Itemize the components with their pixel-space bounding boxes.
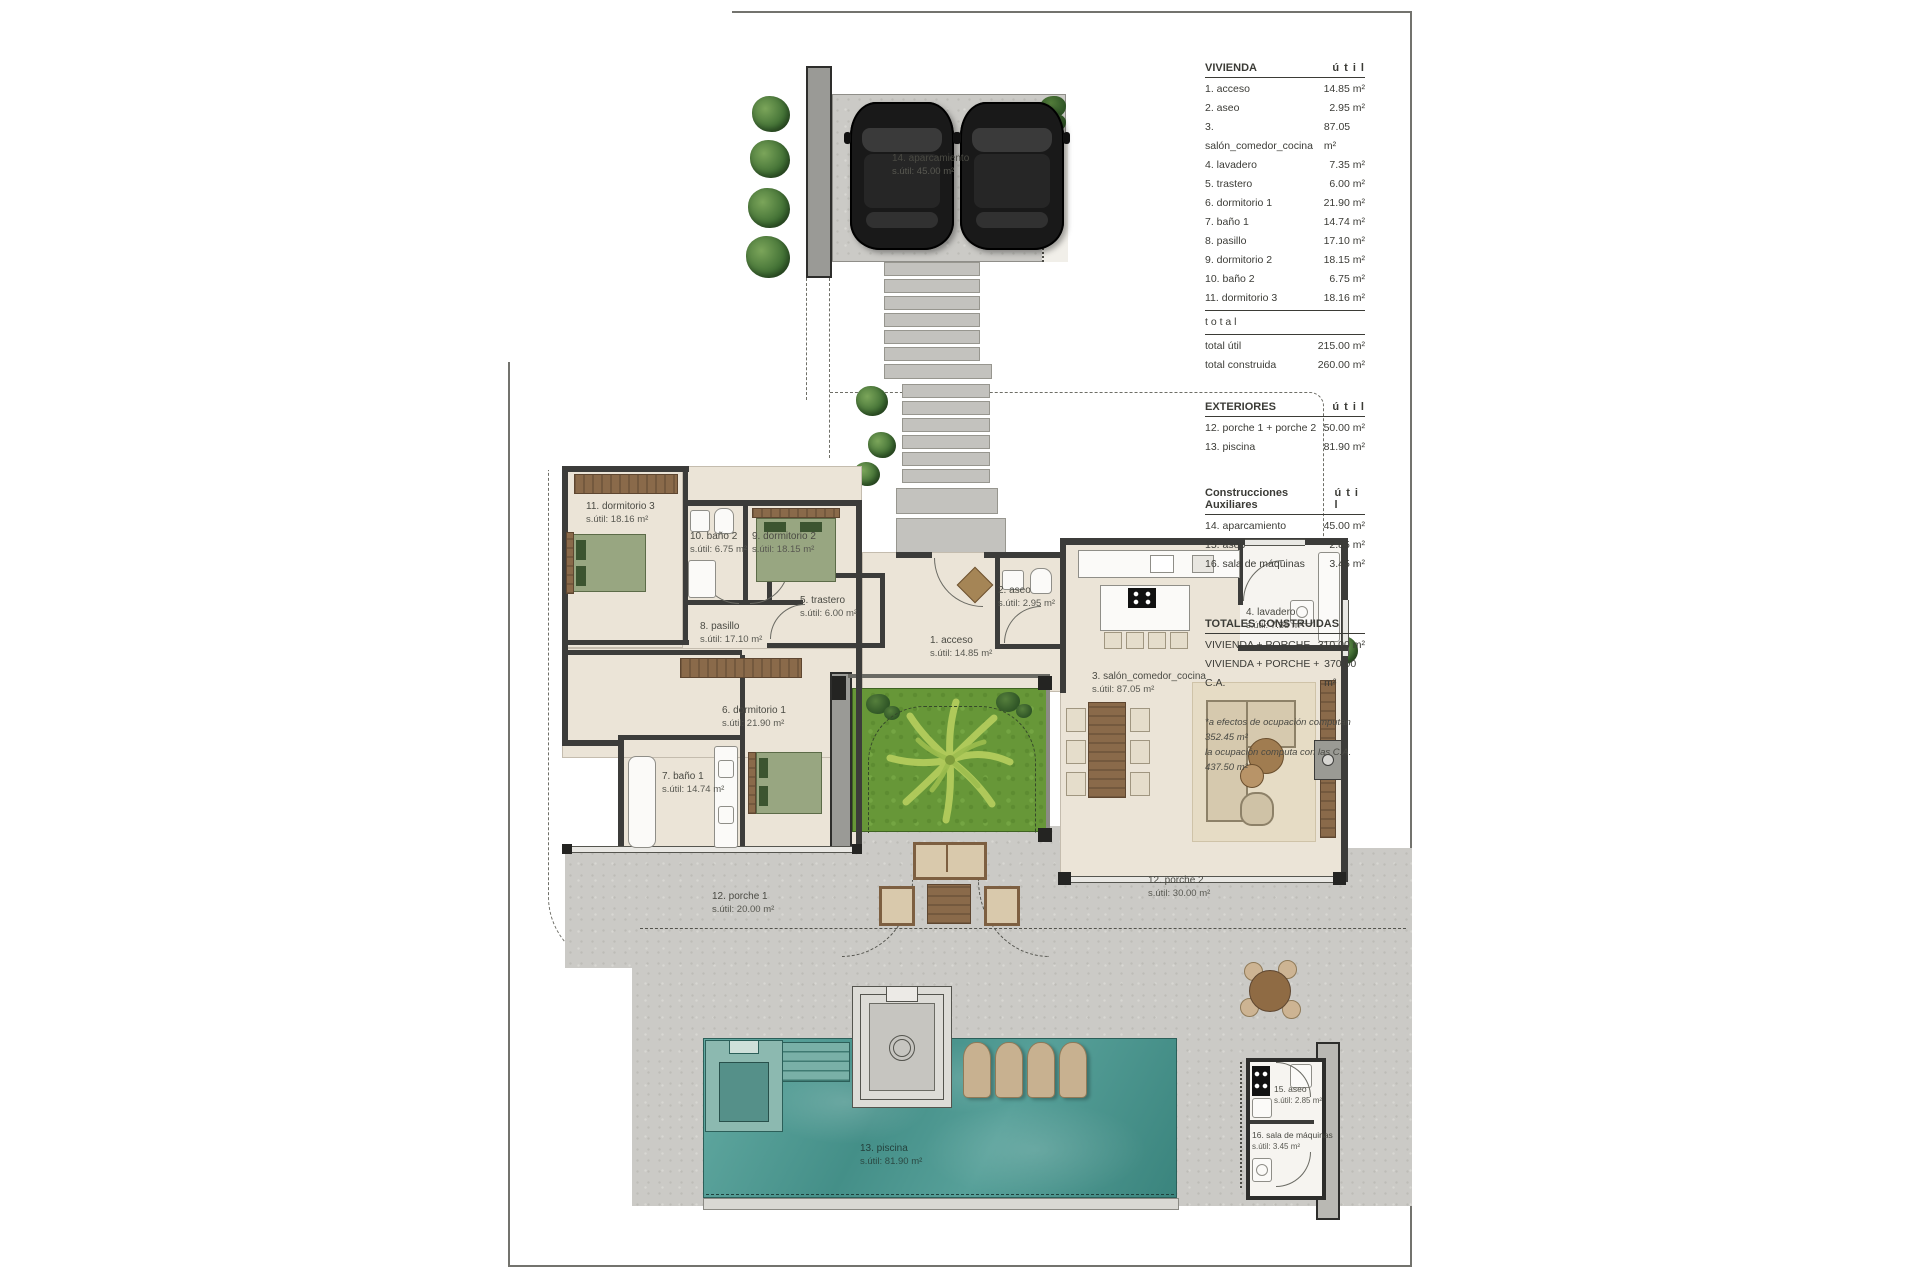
machine-unit-dial xyxy=(1256,1164,1268,1176)
courtyard-beam xyxy=(848,674,1050,678)
room-label-piscina: 13. piscinas.útil: 81.90 m² xyxy=(860,1142,922,1168)
legend-row: 10. baño 26.75 m² xyxy=(1205,270,1365,289)
legend-row: 14. aparcamiento45.00 m² xyxy=(1205,517,1365,536)
room-label-pasillo: 8. pasillos.útil: 17.10 m² xyxy=(700,620,762,646)
legend-auxiliares-header: Construcciones Auxiliares ú t i l xyxy=(1205,487,1365,515)
wall xyxy=(618,740,624,852)
legend-vivienda-unit-header: ú t i l xyxy=(1332,62,1365,74)
wall xyxy=(562,650,742,655)
legend-totales-title: TOTALES CONSTRUIDAS xyxy=(1205,618,1339,630)
tree xyxy=(750,140,790,178)
room-label-bano2: 10. baño 2s.útil: 6.75 m² xyxy=(690,530,747,556)
wall-trastero xyxy=(767,643,885,648)
legend-row: 1. acceso14.85 m² xyxy=(1205,80,1365,99)
pool-rim xyxy=(703,1198,1179,1210)
dining-chair xyxy=(1130,708,1150,732)
path-slab xyxy=(884,347,980,361)
porch-table xyxy=(927,884,971,924)
wall-salon-west-upper xyxy=(1060,545,1066,693)
pool-spa-inner xyxy=(719,1062,769,1122)
car-right xyxy=(960,102,1064,250)
legend-row: 8. pasillo17.10 m² xyxy=(1205,232,1365,251)
wardrobe-dorm3 xyxy=(574,474,678,494)
room-label-porche2: 12. porche 2s.útil: 30.00 m² xyxy=(1148,874,1210,900)
path-landing xyxy=(896,518,1006,554)
boundary-left xyxy=(508,362,510,1267)
courtyard-dashed-guide xyxy=(868,706,1036,833)
boundary-top xyxy=(732,11,1412,13)
path-slab xyxy=(884,262,980,276)
legend-section-vivienda: VIVIENDA ú t i l 1. acceso14.85 m² 2. as… xyxy=(1205,62,1365,375)
legend-row: VIVIENDA + PORCHE310.00 m² xyxy=(1205,636,1365,655)
legend-section-totales: TOTALES CONSTRUIDAS VIVIENDA + PORCHE310… xyxy=(1205,618,1365,693)
wall-acceso-north xyxy=(896,552,932,558)
area-legend: VIVIENDA ú t i l 1. acceso14.85 m² 2. as… xyxy=(1205,62,1365,775)
legend-row: 2. aseo2.95 m² xyxy=(1205,99,1365,118)
legend-vivienda-title: VIVIENDA xyxy=(1205,62,1257,74)
legend-section-exteriores: EXTERIORES ú t i l 12. porche 1 + porche… xyxy=(1205,401,1365,457)
path-slab xyxy=(884,330,980,344)
garden-table xyxy=(1249,970,1291,1012)
tree xyxy=(868,432,896,458)
floor-plan-canvas: 1. accesos.útil: 14.85 m² 2. aseos.útil:… xyxy=(0,0,1920,1280)
dining-chair xyxy=(1066,740,1086,764)
room-label-trastero: 5. trasteros.útil: 6.00 m² xyxy=(800,594,857,620)
legend-row: 4. lavadero7.35 m² xyxy=(1205,156,1365,175)
room-label-aparcamiento: 14. aparcamientos.útil: 45.00 m² xyxy=(892,152,969,178)
legend-section-auxiliares: Construcciones Auxiliares ú t i l 14. ap… xyxy=(1205,487,1365,574)
wall xyxy=(683,470,688,645)
room-label-bano1: 7. baño 1s.útil: 14.74 m² xyxy=(662,770,724,796)
post xyxy=(562,844,572,854)
legend-row: 3. salón_comedor_cocina87.05 m² xyxy=(1205,118,1365,156)
legend-row: 7. baño 114.74 m² xyxy=(1205,213,1365,232)
pavilion-drain-inner xyxy=(893,1039,911,1057)
wall xyxy=(683,600,803,605)
wall xyxy=(562,640,689,645)
wall-trastero xyxy=(880,573,885,648)
post xyxy=(1333,872,1346,885)
wall xyxy=(562,466,568,746)
legend-row: 13. piscina81.90 m² xyxy=(1205,438,1365,457)
legend-exteriores-title: EXTERIORES xyxy=(1205,401,1276,413)
room-label-dormitorio3: 11. dormitorio 3s.útil: 18.16 m² xyxy=(586,500,655,526)
dining-chair xyxy=(1130,772,1150,796)
pool-lounger xyxy=(1027,1042,1055,1098)
boundary-bottom xyxy=(508,1265,1412,1267)
legend-footnote: *a efectos de ocupación computan 352.45 … xyxy=(1205,715,1365,775)
pool-lounger xyxy=(963,1042,991,1098)
path-slab xyxy=(902,384,990,398)
legend-auxiliares-title: Construcciones Auxiliares xyxy=(1205,487,1334,511)
courtyard-east-mullion xyxy=(1046,690,1050,828)
legend-row: 16. sala de máquinas3.45 m² xyxy=(1205,555,1365,574)
pavilion-entry xyxy=(886,986,918,1002)
wall xyxy=(683,500,862,506)
dining-chair xyxy=(1066,708,1086,732)
legend-row-total-construida: total construida260.00 m² xyxy=(1205,356,1365,375)
path-slab xyxy=(884,313,980,327)
sink-bano2 xyxy=(690,510,710,532)
pool-overflow-line xyxy=(706,1194,1174,1195)
tree xyxy=(752,96,790,132)
wall xyxy=(562,740,622,746)
legend-auxiliares-unit-header: ú t i l xyxy=(1334,487,1365,511)
legend-row: 5. trastero6.00 m² xyxy=(1205,175,1365,194)
wall xyxy=(562,466,689,472)
legend-row: 6. dormitorio 121.90 m² xyxy=(1205,194,1365,213)
bed-dorm3 xyxy=(572,534,646,592)
path-slab xyxy=(884,279,980,293)
path-slab xyxy=(902,435,990,449)
legend-row: 9. dormitorio 218.15 m² xyxy=(1205,251,1365,270)
courtyard-chimney xyxy=(832,676,846,700)
path-slab xyxy=(884,364,992,379)
porch-chair xyxy=(984,886,1020,926)
dashed-guide-garage-left xyxy=(806,278,807,400)
aux-dotted-edge xyxy=(1240,1062,1242,1188)
wardrobe-dorm1 xyxy=(680,658,802,678)
wall xyxy=(856,500,862,852)
tree xyxy=(746,236,790,278)
room-label-acceso: 1. accesos.útil: 14.85 m² xyxy=(930,634,992,660)
sink-bano1 xyxy=(718,806,734,824)
room-label-dormitorio2: 9. dormitorio 2s.útil: 18.15 m² xyxy=(752,530,816,556)
porch-chair xyxy=(879,886,915,926)
room-label-sala-maquinas: 16. sala de máquinass.útil: 3.45 m² xyxy=(1252,1130,1333,1152)
bar-stool xyxy=(1170,632,1188,649)
pool-steps xyxy=(782,1042,850,1082)
legend-row: 12. porche 1 + porche 250.00 m² xyxy=(1205,419,1365,438)
pool-lounger xyxy=(1059,1042,1087,1098)
path-slab xyxy=(896,488,998,514)
room-label-aseo-aux: 15. aseos.útil: 2.85 m² xyxy=(1274,1084,1322,1106)
headboard-dorm3 xyxy=(566,532,574,594)
legend-row: VIVIENDA + PORCHE + C.A.370.00 m² xyxy=(1205,655,1365,693)
pool-spa-step xyxy=(729,1040,759,1054)
post xyxy=(852,844,862,854)
post xyxy=(1058,872,1071,885)
garage-wall xyxy=(806,66,832,278)
wall xyxy=(618,735,745,740)
porch-sofa xyxy=(913,842,987,880)
bar-stool xyxy=(1104,632,1122,649)
legend-vivienda-header: VIVIENDA ú t i l xyxy=(1205,62,1365,78)
bar-stool xyxy=(1126,632,1144,649)
headboard-dorm2 xyxy=(752,508,840,518)
armchair xyxy=(1240,792,1274,826)
dining-chair xyxy=(1130,740,1150,764)
path-slab xyxy=(902,469,990,483)
courtyard-column xyxy=(1038,676,1052,690)
shower-bano2 xyxy=(688,560,716,598)
courtyard-column xyxy=(1038,828,1052,842)
aux-appliance xyxy=(1252,1066,1270,1096)
kitchen-sink xyxy=(1150,555,1174,573)
wall xyxy=(740,655,745,852)
legend-exteriores-header: EXTERIORES ú t i l xyxy=(1205,401,1365,417)
room-label-dormitorio1: 6. dormitorio 1s.útil: 21.90 m² xyxy=(722,704,786,730)
legend-row: 15. aseo2.85 m² xyxy=(1205,536,1365,555)
wall-aseo-bottom xyxy=(995,644,1065,649)
legend-row-total-util: total útil215.00 m² xyxy=(1205,334,1365,356)
tree xyxy=(748,188,790,228)
path-slab xyxy=(884,296,980,310)
headboard-dorm1 xyxy=(748,752,756,814)
path-slab xyxy=(902,418,990,432)
dining-table xyxy=(1088,702,1126,798)
aux-counter xyxy=(1252,1098,1272,1118)
legend-exteriores-unit-header: ú t i l xyxy=(1332,401,1365,413)
aux-divider xyxy=(1250,1120,1314,1124)
bar-stool xyxy=(1148,632,1166,649)
path-slab xyxy=(902,452,990,466)
room-label-salon: 3. salón_comedor_cocinas.útil: 87.05 m² xyxy=(1092,670,1206,696)
room-label-porche1: 12. porche 1s.útil: 20.00 m² xyxy=(712,890,774,916)
tree xyxy=(856,386,888,416)
dining-chair xyxy=(1066,772,1086,796)
pool-lounger xyxy=(995,1042,1023,1098)
room-label-aseo: 2. aseos.útil: 2.95 m² xyxy=(998,584,1055,610)
porch-sofa-split xyxy=(946,844,948,872)
cooktop xyxy=(1128,588,1156,608)
bathtub-bano1 xyxy=(628,756,656,848)
legend-row: 11. dormitorio 318.16 m² xyxy=(1205,289,1365,308)
legend-totales-header: TOTALES CONSTRUIDAS xyxy=(1205,618,1365,634)
legend-total-label: t o t a l xyxy=(1205,310,1365,332)
path-slab xyxy=(902,401,990,415)
bed-dorm1 xyxy=(756,752,822,814)
